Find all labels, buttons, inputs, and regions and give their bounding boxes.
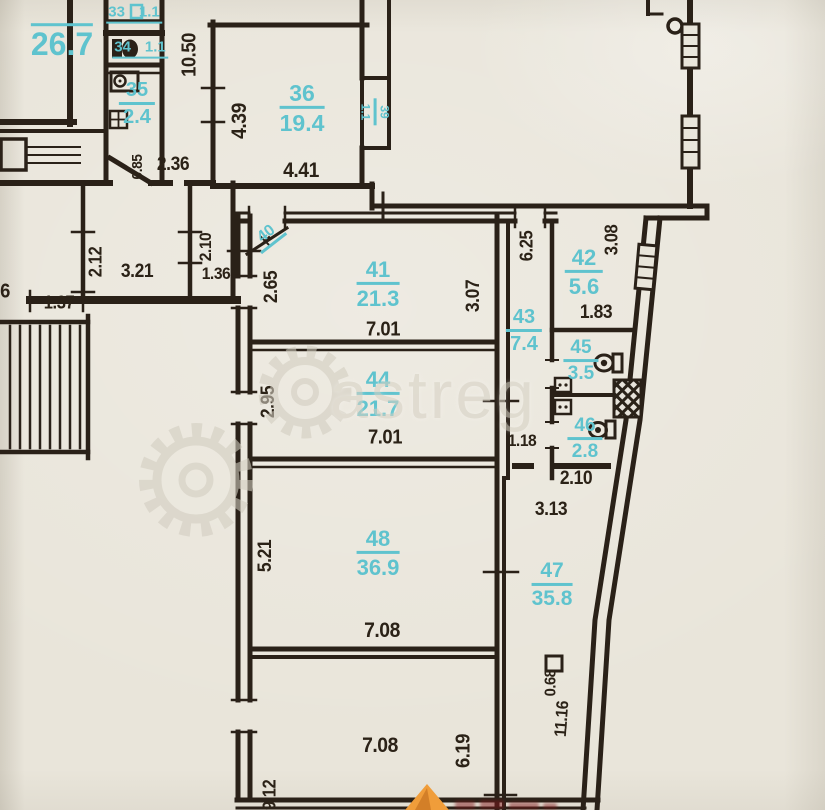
door-jamb xyxy=(249,207,545,227)
room-41-area: 21.3 xyxy=(357,285,400,310)
room-45-label: 45 3.5 xyxy=(563,338,598,384)
room-39-number: 39 xyxy=(374,98,391,125)
dim-1-83: 1.83 xyxy=(580,303,612,323)
dim-7-08-bottom: 7.08 xyxy=(362,735,398,757)
dim-7-08-room48: 7.08 xyxy=(364,620,400,642)
dim-3-07: 3.07 xyxy=(464,280,484,312)
room-36-area: 19.4 xyxy=(280,109,325,135)
dim-2-65: 2.65 xyxy=(262,271,282,303)
closet-box xyxy=(1,139,26,170)
room-44-label: 44 21.7 xyxy=(357,368,400,420)
room-47-area: 35.8 xyxy=(532,586,573,610)
room-36-number: 36 xyxy=(280,81,325,109)
room-42-number: 42 xyxy=(565,246,603,273)
dim-partial-6: 6 xyxy=(0,282,10,303)
dim-4-39: 4.39 xyxy=(229,103,251,139)
room-47-number: 47 xyxy=(532,560,573,586)
stairs-icon xyxy=(0,316,88,458)
room-42-area: 5.6 xyxy=(565,273,603,298)
room-33-label: 33 1.1 xyxy=(106,5,162,24)
stamp-fragment xyxy=(480,800,504,809)
room-39-area: 1.1 xyxy=(359,98,374,125)
dim-2-10-right: 2.10 xyxy=(560,469,592,489)
room-48-number: 48 xyxy=(357,527,400,554)
dim-10-50: 10.50 xyxy=(180,33,201,77)
dim-6-19: 6.19 xyxy=(454,734,475,768)
room-44-area: 21.7 xyxy=(357,395,400,420)
room-35-label: 35 2.4 xyxy=(119,80,155,128)
room-39-label: 39 1.1 xyxy=(359,98,390,125)
floor-plan-sheet: 26.7 33 1.1 34 1.1 35 2.4 36 19.4 39 1.1… xyxy=(0,0,825,810)
pipe-icon xyxy=(668,19,682,33)
dim-1-18: 1.18 xyxy=(508,432,537,450)
stamp-fragment xyxy=(543,803,557,809)
room-46-number: 46 xyxy=(567,416,602,440)
dim-7-01-room44: 7.01 xyxy=(368,428,402,449)
room-41-label: 41 21.3 xyxy=(357,258,400,310)
dim-5-21: 5.21 xyxy=(256,540,276,572)
room-34-number: 34 xyxy=(114,40,131,56)
room-26-label: 26.7 xyxy=(31,22,93,62)
room-26-area: 26.7 xyxy=(31,26,93,62)
room-35-area: 2.4 xyxy=(119,105,155,128)
dim-1-37: 1.37 xyxy=(44,294,74,313)
room-34-area: 1.1 xyxy=(145,40,166,56)
dim-6-25: 6.25 xyxy=(518,231,537,261)
dim-11-16: 11.16 xyxy=(552,700,572,737)
room-48-area: 36.9 xyxy=(357,554,400,579)
stamp-fragment xyxy=(509,802,539,809)
room-41-number: 41 xyxy=(357,258,400,285)
dim-2-36: 2.36 xyxy=(157,155,189,175)
window-icon xyxy=(635,244,657,289)
room-34-label: 34 1.1 xyxy=(112,40,168,59)
room-36-label: 36 19.4 xyxy=(280,81,325,135)
room-47-label: 47 35.8 xyxy=(532,560,573,610)
dim-7-01-room41: 7.01 xyxy=(366,320,400,341)
room-44-number: 44 xyxy=(357,368,400,395)
stamp-fragment xyxy=(455,801,475,809)
room-43-area: 7.4 xyxy=(506,332,542,355)
room-35-number: 35 xyxy=(119,80,155,105)
logo-icon xyxy=(403,784,453,810)
dim-1-36: 1.36 xyxy=(202,265,231,283)
room-43-number: 43 xyxy=(506,307,542,332)
room-46-area: 2.8 xyxy=(567,440,602,462)
dim-3-21: 3.21 xyxy=(121,262,153,282)
window-icon xyxy=(28,147,80,163)
dim-3-13: 3.13 xyxy=(535,500,567,520)
room-46-label: 46 2.8 xyxy=(567,416,602,462)
room-43-label: 43 7.4 xyxy=(506,307,542,355)
room-33-number: 33 xyxy=(108,5,125,21)
room-33-area: 1.1 xyxy=(139,5,160,21)
dim-0-85: 0.85 xyxy=(130,154,146,179)
dim-3-08: 3.08 xyxy=(603,225,622,255)
room-45-area: 3.5 xyxy=(563,362,598,384)
room-48-label: 48 36.9 xyxy=(357,527,400,579)
dim-2-95: 2.95 xyxy=(259,386,279,418)
room-42-label: 42 5.6 xyxy=(565,246,603,298)
toilet-icon xyxy=(595,354,622,372)
dim-2-10-left: 2.10 xyxy=(197,233,215,262)
dim-9-12: 9.12 xyxy=(261,780,280,810)
dim-2-12: 2.12 xyxy=(87,247,106,277)
room-45-number: 45 xyxy=(563,338,598,362)
dim-0-68: 0.68 xyxy=(544,670,561,697)
dim-4-41: 4.41 xyxy=(283,160,319,182)
